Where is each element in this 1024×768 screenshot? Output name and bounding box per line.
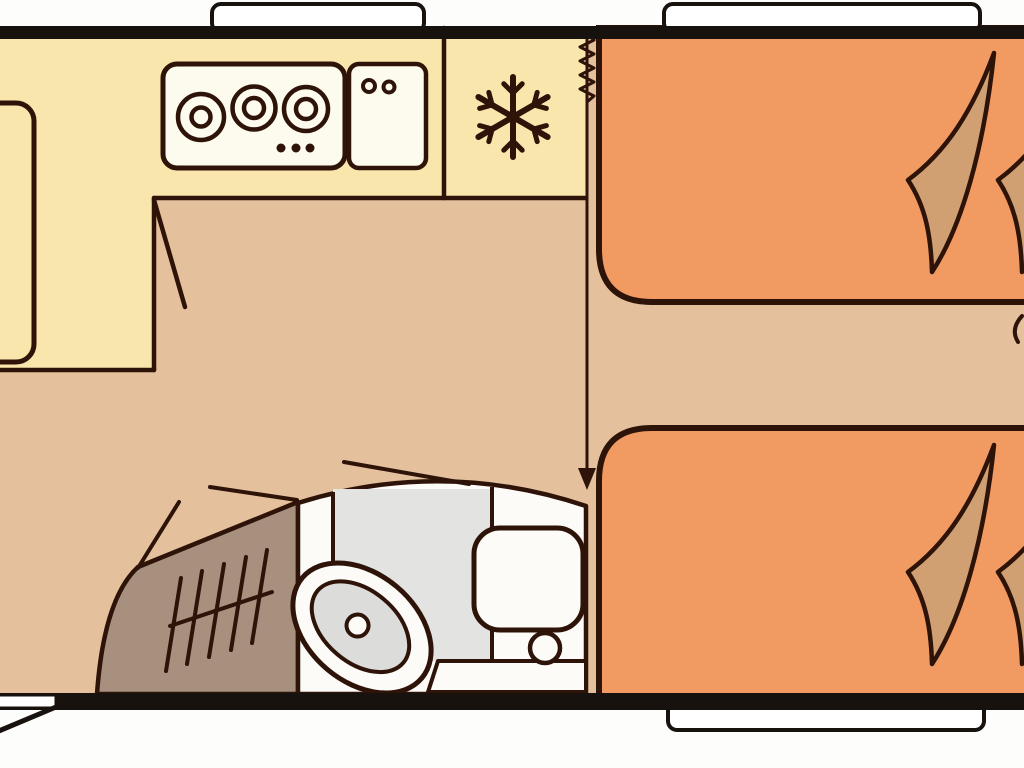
hob-control-dot <box>292 144 301 153</box>
entry-door-opening <box>0 695 56 708</box>
hob-control-dot <box>277 144 286 153</box>
hob-control-dot <box>306 144 315 153</box>
bed-top <box>599 28 1024 302</box>
kitchen-sink <box>349 64 426 168</box>
bed-bottom <box>599 428 1024 704</box>
wall-top <box>0 26 1024 39</box>
toilet <box>474 528 583 630</box>
floorplan-stage: Caravan / motorhome floor plan, side vie… <box>0 0 1024 768</box>
bathroom-step <box>428 661 586 692</box>
left-cabinet <box>0 103 34 362</box>
caravan-floorplan <box>0 0 1024 768</box>
hob <box>163 64 345 168</box>
sink-panel <box>349 64 426 168</box>
toilet-flush <box>530 633 560 663</box>
wall-bottom <box>0 693 1024 710</box>
